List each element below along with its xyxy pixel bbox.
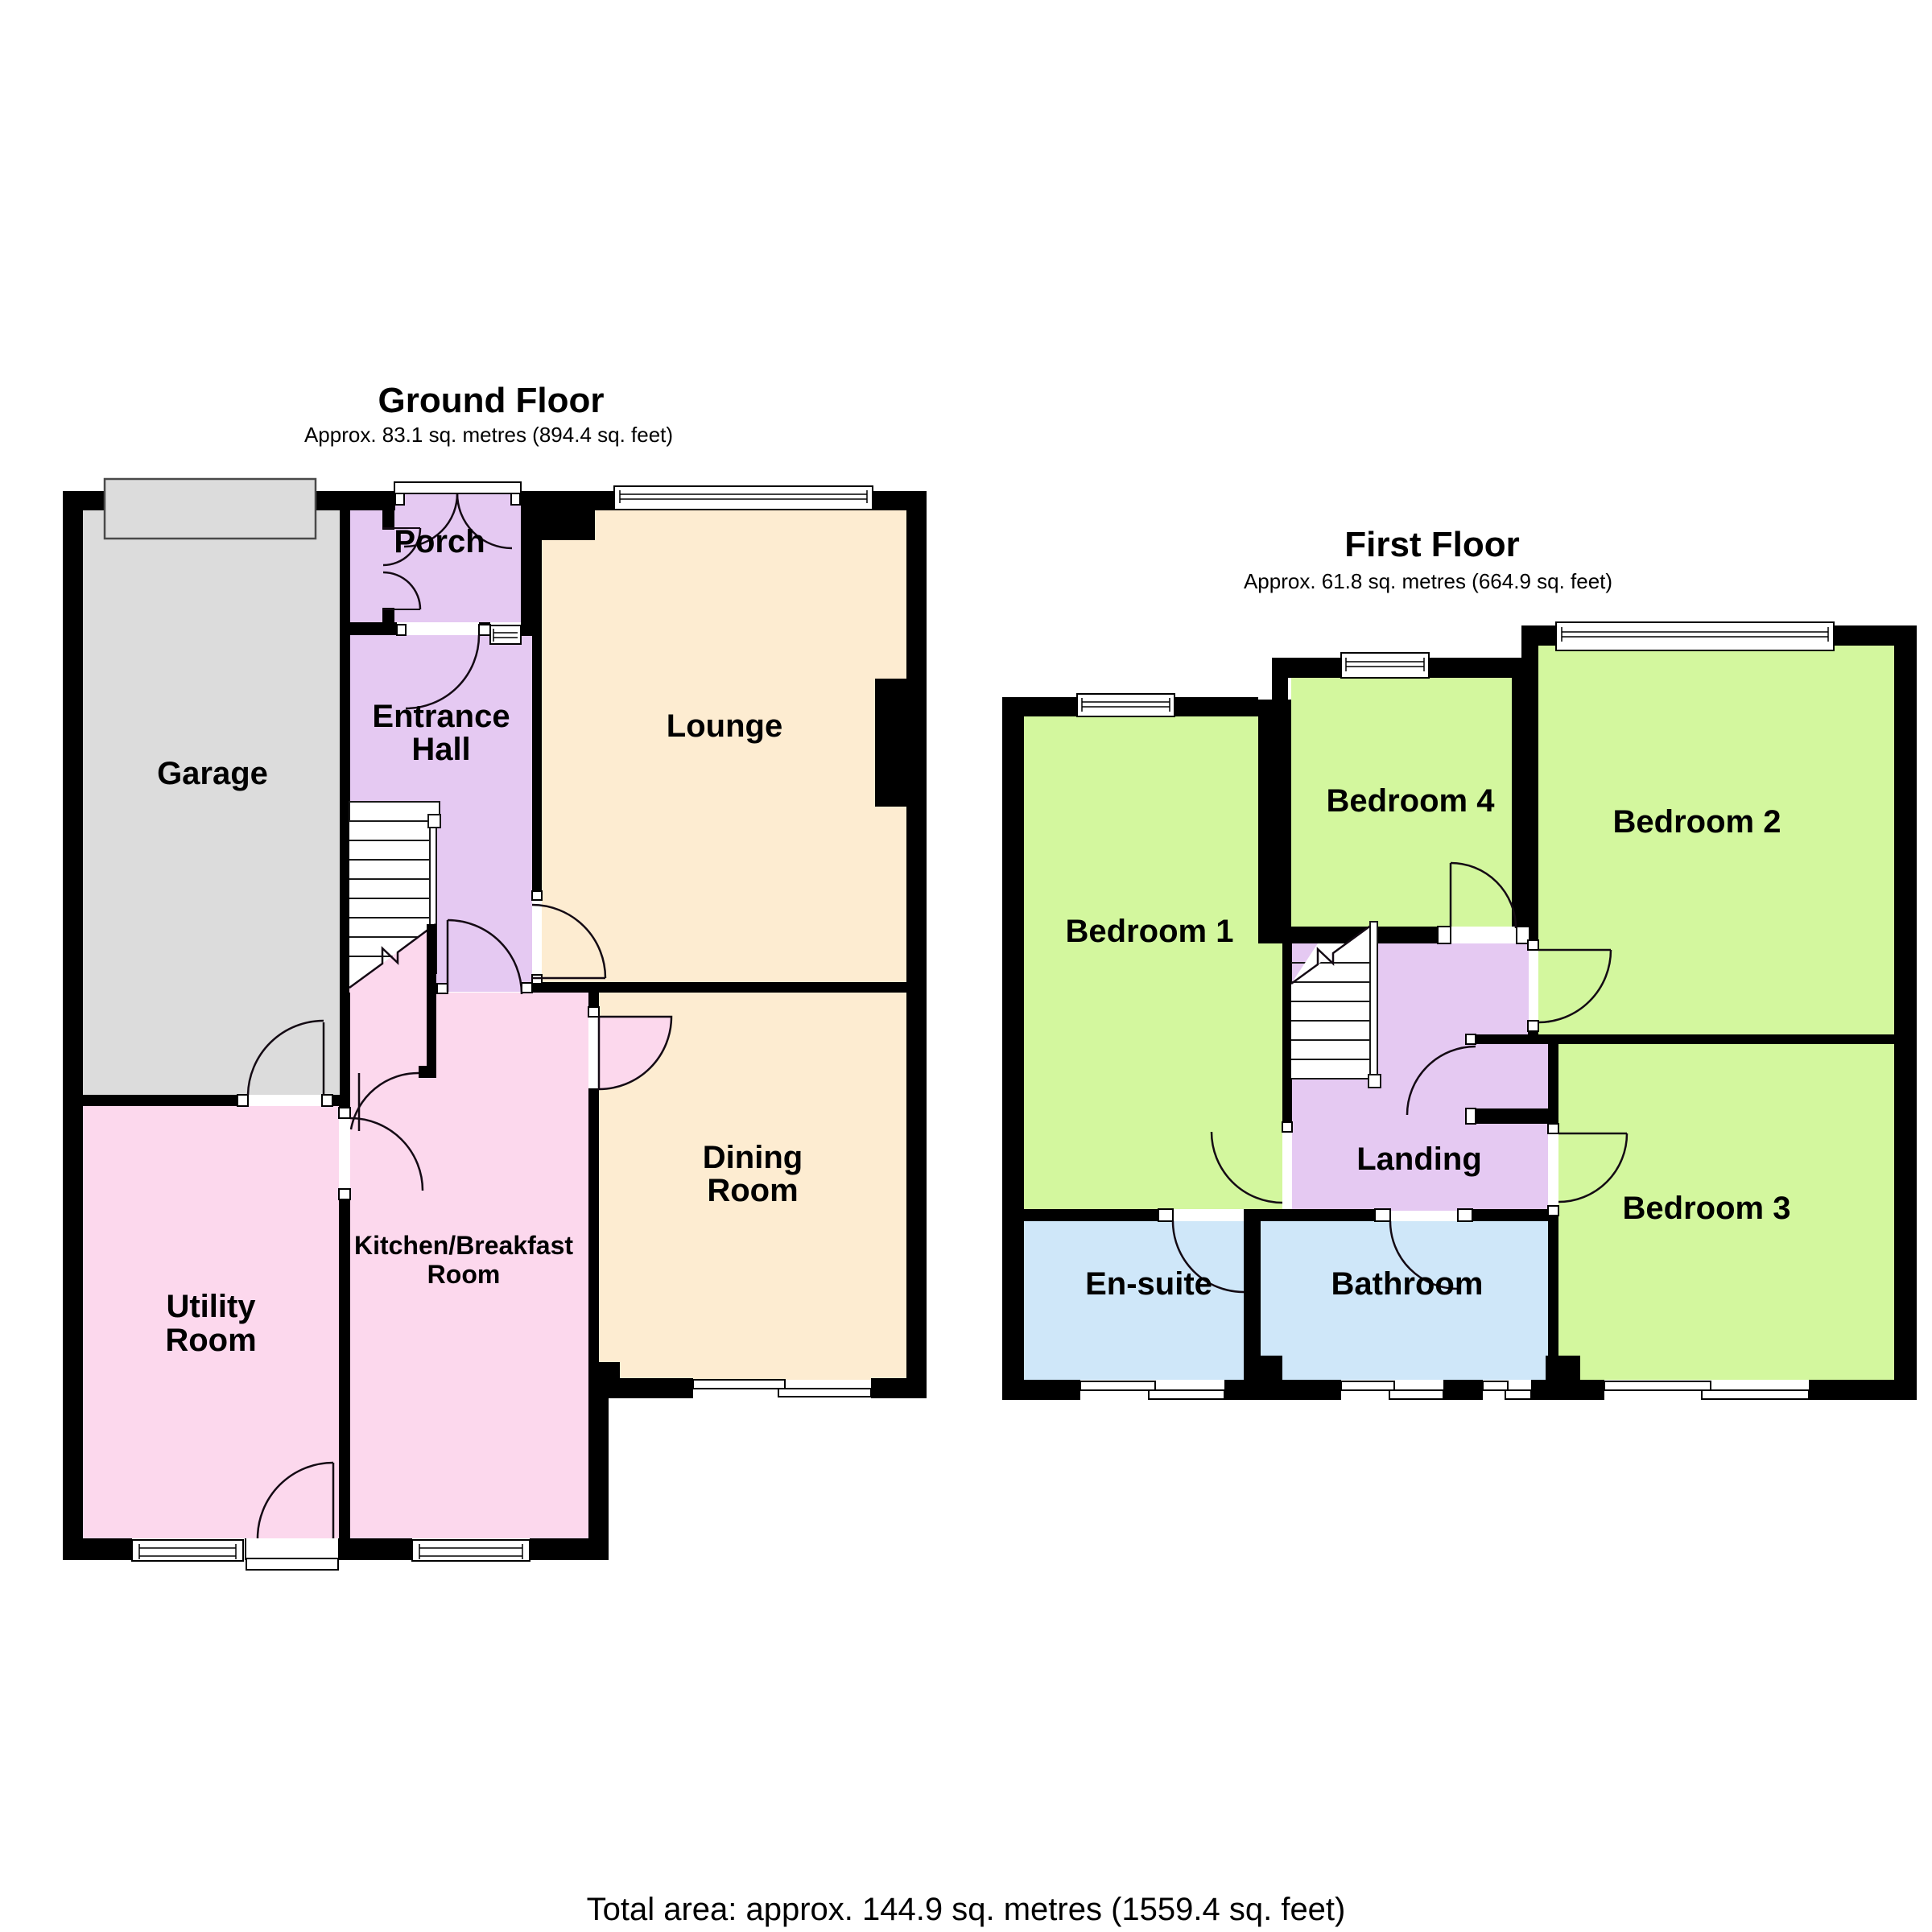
svg-text:Bedroom 1: Bedroom 1: [1066, 914, 1234, 949]
svg-text:Dining: Dining: [703, 1140, 803, 1175]
svg-text:Utility: Utility: [166, 1289, 256, 1324]
svg-text:Bathroom: Bathroom: [1331, 1266, 1484, 1302]
svg-text:Bedroom 2: Bedroom 2: [1613, 804, 1781, 840]
svg-text:Entrance: Entrance: [372, 699, 510, 734]
svg-text:Total area: approx. 144.9 sq.: Total area: approx. 144.9 sq. metres (15…: [587, 1892, 1346, 1927]
svg-text:Room: Room: [165, 1323, 256, 1358]
svg-text:Bedroom 3: Bedroom 3: [1623, 1191, 1791, 1226]
svg-text:First Floor: First Floor: [1344, 525, 1520, 564]
svg-text:Bedroom 4: Bedroom 4: [1327, 783, 1496, 819]
svg-text:Porch: Porch: [394, 524, 485, 559]
svg-text:Hall: Hall: [411, 732, 470, 767]
svg-text:Approx. 83.1 sq. metres (894.4: Approx. 83.1 sq. metres (894.4 sq. feet): [304, 423, 673, 447]
svg-text:Garage: Garage: [157, 756, 268, 791]
svg-text:Approx. 61.8 sq. metres (664.9: Approx. 61.8 sq. metres (664.9 sq. feet): [1244, 569, 1612, 593]
svg-text:Room: Room: [707, 1173, 798, 1208]
svg-text:En-suite: En-suite: [1085, 1266, 1212, 1302]
svg-text:Ground Floor: Ground Floor: [378, 381, 604, 420]
svg-text:Room: Room: [427, 1260, 501, 1289]
svg-text:Lounge: Lounge: [667, 708, 782, 744]
svg-text:Kitchen/Breakfast: Kitchen/Breakfast: [354, 1231, 573, 1260]
svg-text:Landing: Landing: [1356, 1141, 1482, 1177]
